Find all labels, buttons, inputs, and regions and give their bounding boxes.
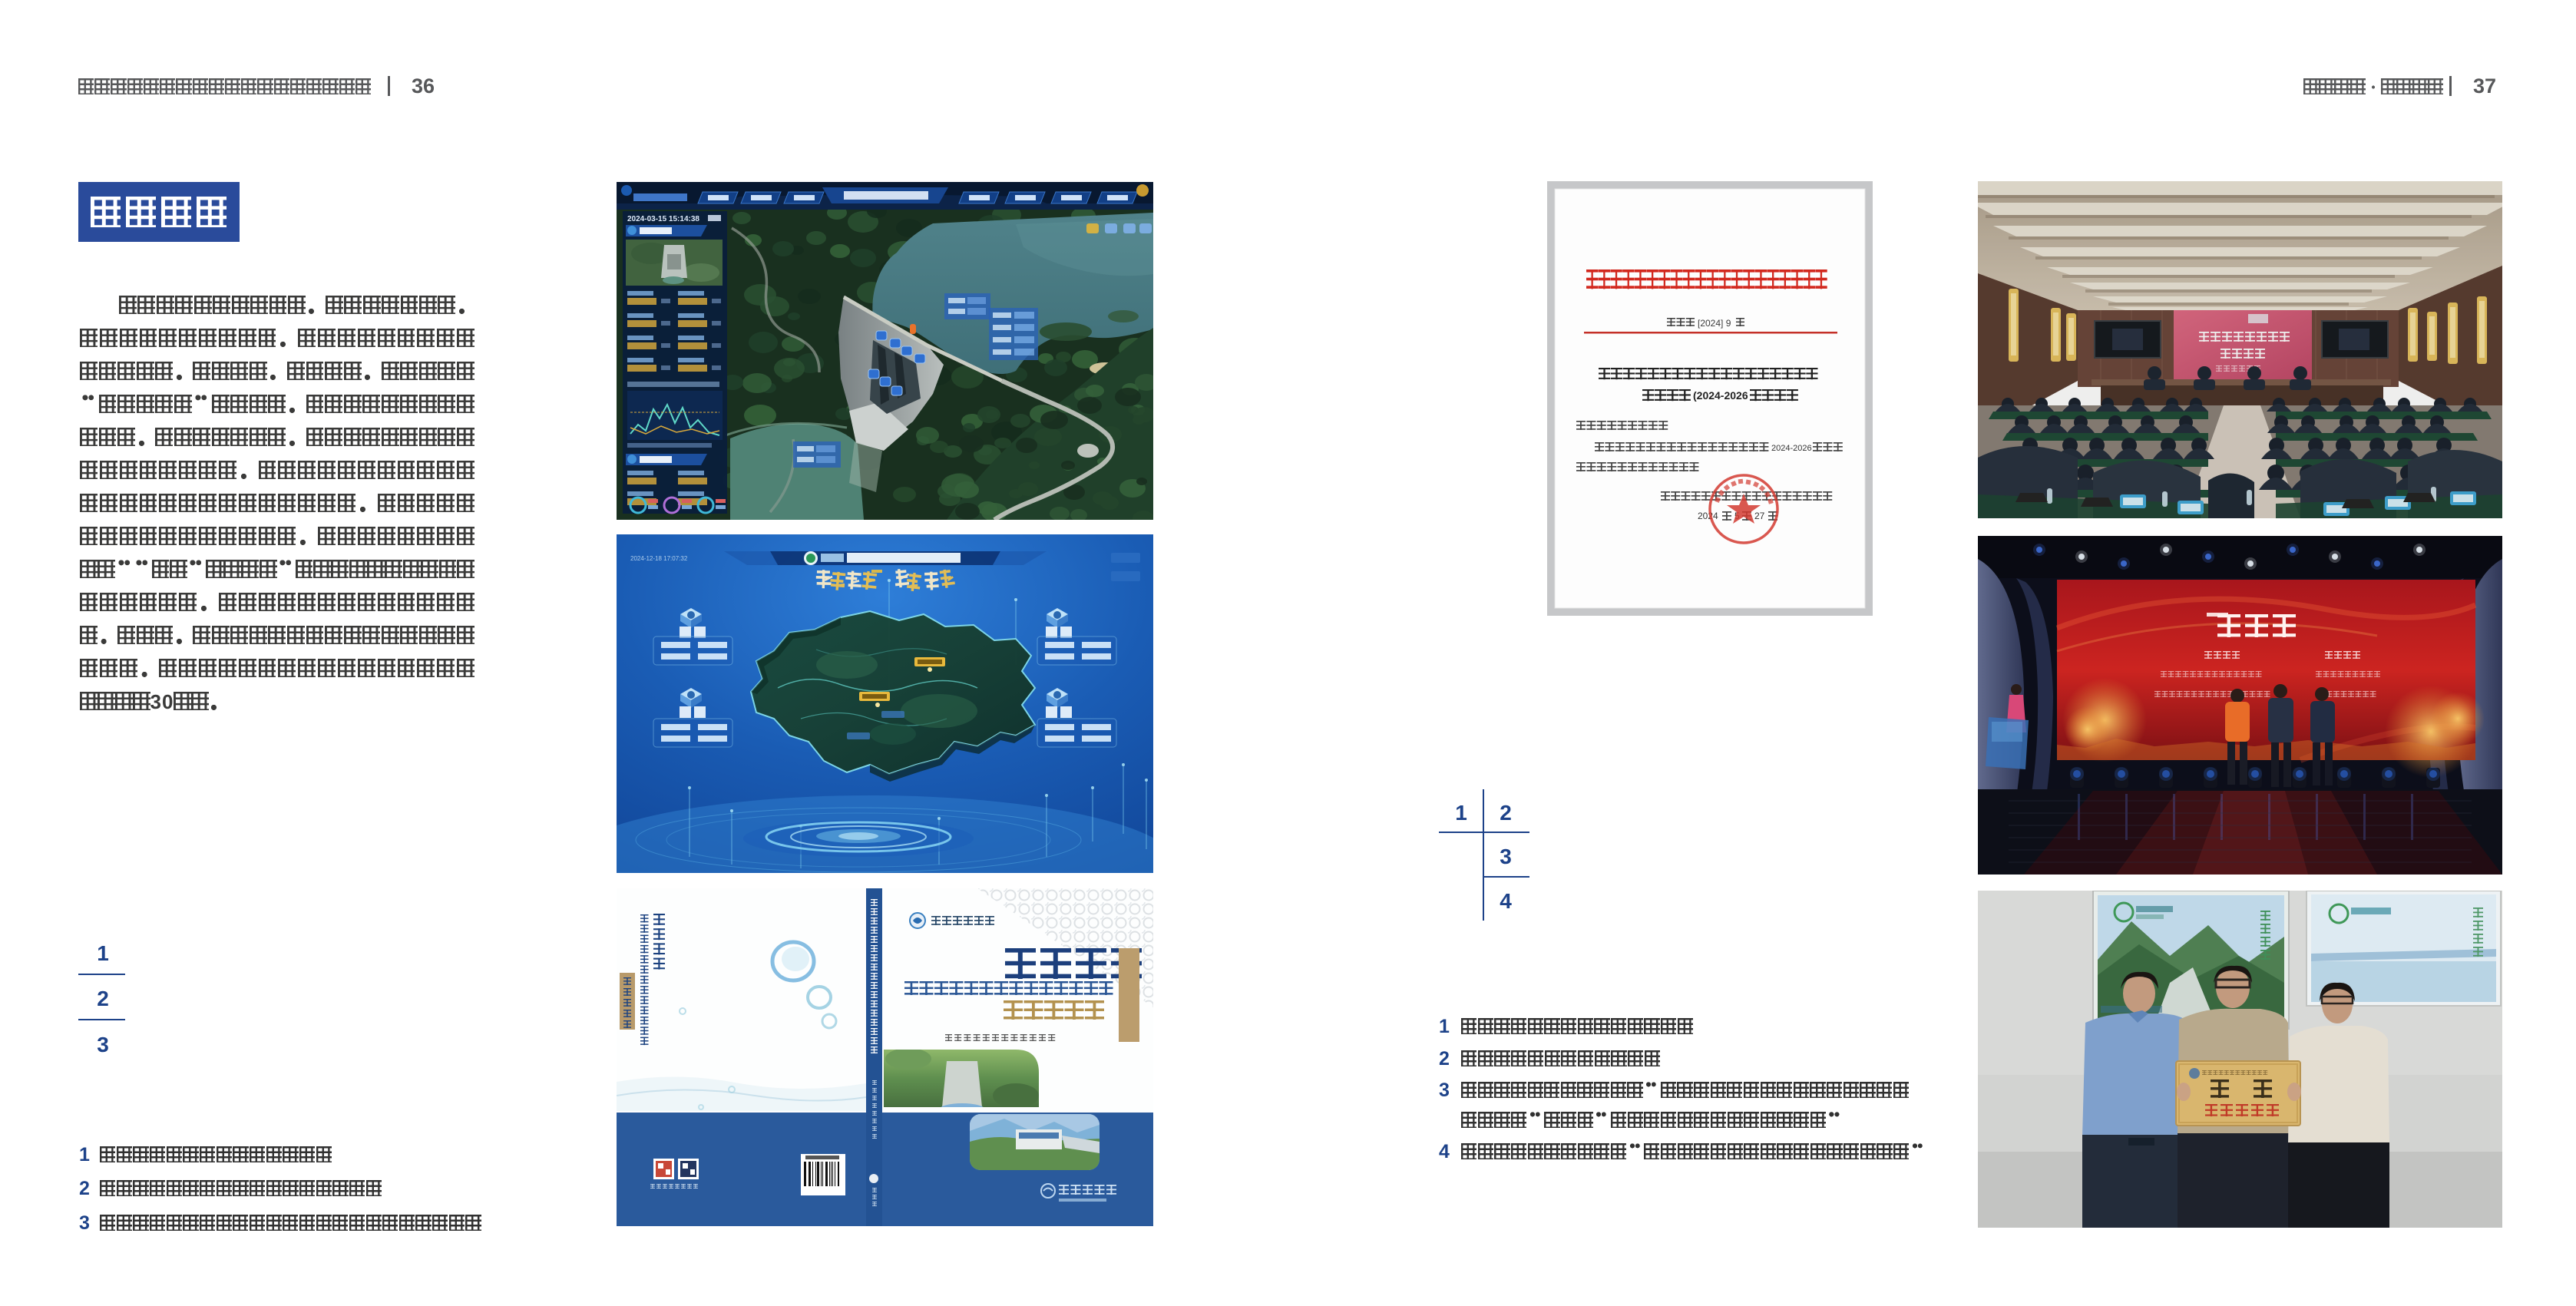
svg-text:[2024] 9: [2024] 9	[1698, 318, 1731, 329]
svg-text:2024-03-15 15:14:38: 2024-03-15 15:14:38	[627, 215, 699, 223]
svg-text:2024-12-18 17:07:32: 2024-12-18 17:07:32	[630, 555, 688, 562]
svg-text:27: 27	[1754, 511, 1765, 521]
svg-text:2024: 2024	[1698, 511, 1718, 521]
svg-text:(2024-2026: (2024-2026	[1693, 389, 1748, 402]
svg-text:2024-2026: 2024-2026	[1771, 444, 1812, 453]
